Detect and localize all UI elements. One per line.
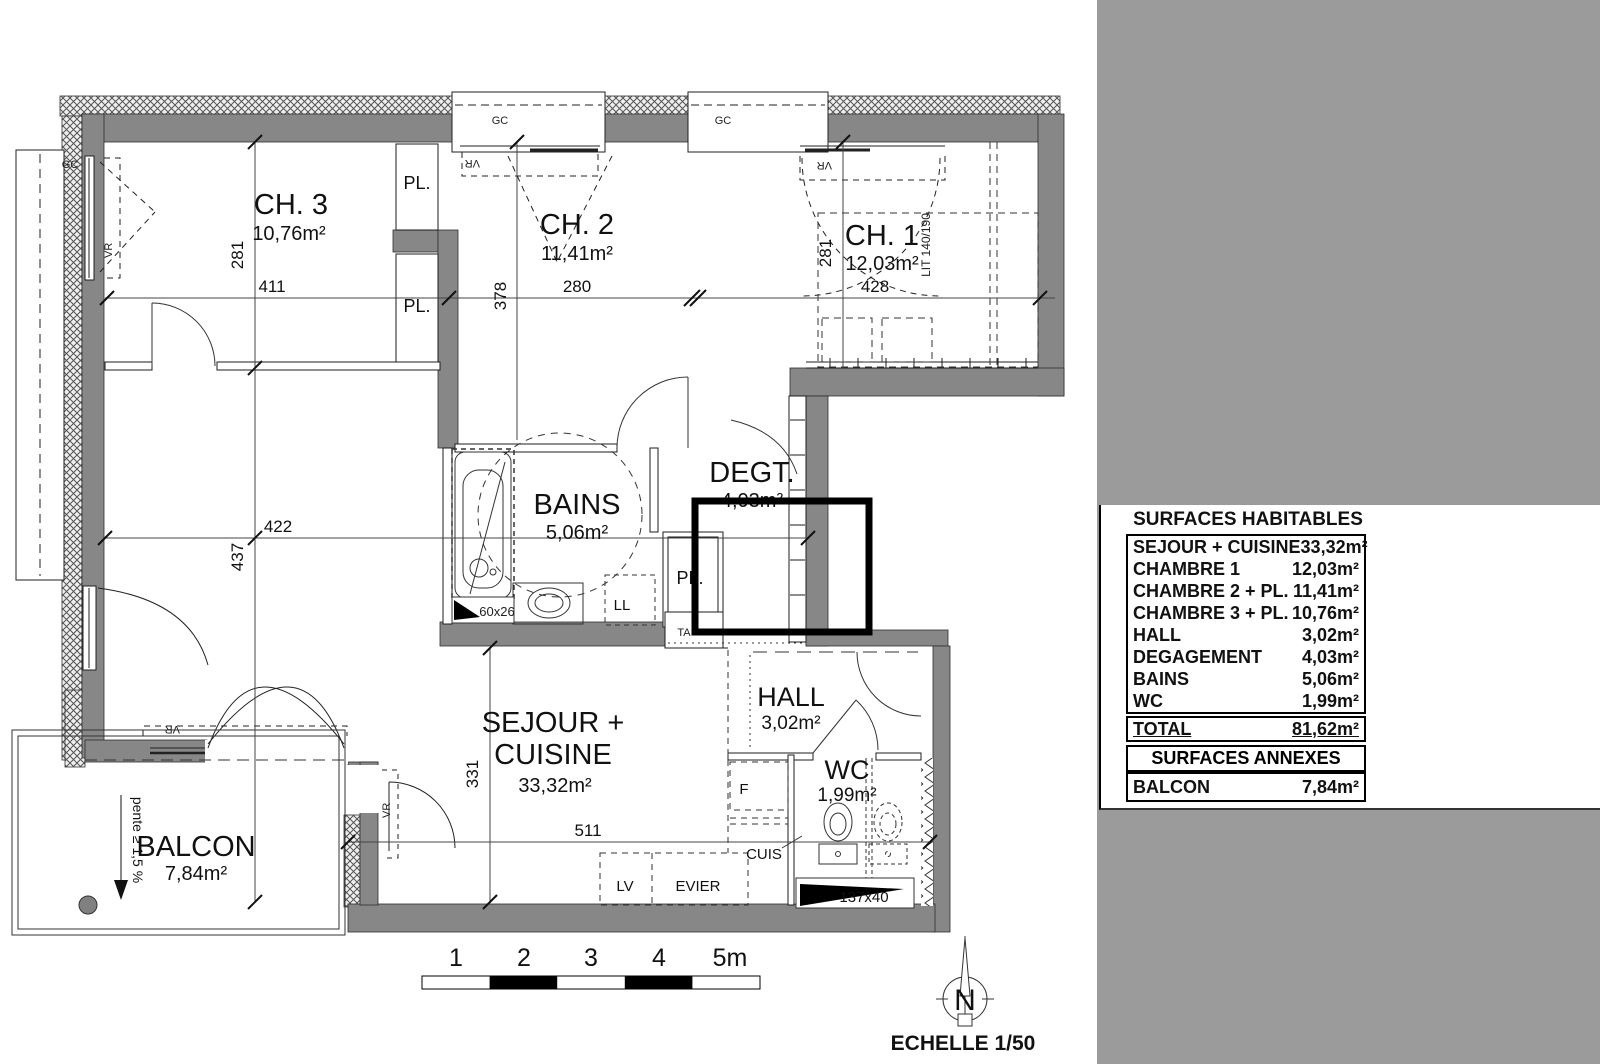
gc-label: GC — [492, 115, 509, 127]
room-hall-area: 3,02m² — [761, 713, 820, 734]
room-hall-name: HALL — [757, 682, 825, 712]
total-value: 81,62m² — [1292, 718, 1359, 740]
svg-text:422: 422 — [264, 517, 292, 536]
annex-table: BALCON7,84m² — [1126, 772, 1366, 802]
scale-tick: 5m — [713, 944, 748, 972]
north-arrow: N — [936, 936, 994, 1026]
row-label: BALCON — [1133, 774, 1210, 800]
row-value: 5,06m² — [1302, 668, 1359, 690]
table-row: SEJOUR + CUISINE33,32m² — [1128, 536, 1364, 558]
scale-text: ECHELLE 1/50 — [891, 1032, 1036, 1055]
f-label: F — [739, 781, 748, 798]
room-balcon-area: 7,84m² — [165, 863, 228, 885]
svg-text:437: 437 — [228, 543, 247, 571]
svg-text:VR: VR — [817, 159, 832, 171]
row-label: BAINS — [1133, 668, 1189, 690]
gc-label: GC — [62, 159, 79, 171]
table-row: CHAMBRE 2 + PL.11,41m² — [1128, 580, 1364, 602]
svg-text:VR: VR — [381, 803, 393, 818]
room-ch1-name: CH. 1 — [845, 220, 919, 252]
svg-text:331: 331 — [463, 760, 482, 788]
row-value: 33,32m² — [1301, 536, 1368, 558]
cuis-label: CUIS — [746, 846, 782, 863]
pl-label: PL. — [676, 568, 703, 588]
table-row: CHAMBRE 3 + PL.10,76m² — [1128, 602, 1364, 624]
scale-tick: 1 — [449, 944, 463, 972]
total-row: TOTAL81,62m² — [1128, 718, 1364, 740]
svg-text:378: 378 — [491, 282, 510, 310]
pl-label: PL. — [403, 296, 430, 316]
table-row: WC1,99m² — [1128, 690, 1364, 712]
scale-tick: 2 — [517, 944, 531, 972]
slope-label: pente ≥ 1,5 % — [130, 797, 146, 883]
svg-text:VR: VR — [165, 723, 180, 735]
total-label: TOTAL — [1133, 718, 1191, 740]
room-wc-name: WC — [825, 755, 870, 785]
duct-size-label: 137x40 — [839, 889, 888, 906]
table-row: HALL3,02m² — [1128, 624, 1364, 646]
row-value: 3,02m² — [1302, 624, 1359, 646]
pl-label: PL. — [403, 173, 430, 193]
room-ch3-name: CH. 3 — [254, 189, 328, 221]
row-label: CHAMBRE 1 — [1133, 558, 1240, 580]
row-label: CHAMBRE 2 + PL. — [1133, 580, 1289, 602]
bathtub — [452, 449, 514, 601]
annex-title: SURFACES ANNEXES — [1128, 747, 1364, 770]
row-value: 1,99m² — [1302, 690, 1359, 712]
surfaces-title: SURFACES HABITABLES — [1126, 509, 1370, 531]
scale-tick: 3 — [584, 944, 598, 972]
room-sejour-name1: SEJOUR + — [482, 707, 625, 739]
table-row: BALCON7,84m² — [1128, 774, 1364, 800]
bath-size-label: 60x26 — [479, 604, 514, 619]
bed-size-label: LIT 140/190 — [919, 213, 933, 277]
annex-title-box: SURFACES ANNEXES — [1126, 745, 1366, 772]
room-ch3-area: 10,76m² — [252, 223, 326, 245]
toilet-alt — [866, 758, 907, 880]
slope-arrow — [114, 795, 128, 900]
row-value: 11,41m² — [1293, 580, 1359, 602]
evier-label: EVIER — [675, 878, 720, 895]
table-row: CHAMBRE 112,03m² — [1128, 558, 1364, 580]
room-wc-area: 1,99m² — [817, 785, 876, 806]
scale-tick: 4 — [652, 944, 666, 972]
row-value: 10,76m² — [1292, 602, 1359, 624]
lv-label: LV — [616, 878, 633, 895]
table-row: DEGAGEMENT4,03m² — [1128, 646, 1364, 668]
toilet — [819, 803, 857, 864]
surfaces-table-card: SURFACES HABITABLES SEJOUR + CUISINE33,3… — [1099, 505, 1600, 810]
svg-text:VR: VR — [465, 157, 480, 169]
row-label: WC — [1133, 690, 1163, 712]
total-box: TOTAL81,62m² — [1126, 716, 1366, 742]
room-ch2-area: 11,41m² — [541, 243, 613, 265]
row-label: DEGAGEMENT — [1133, 646, 1262, 668]
north-label: N — [954, 984, 976, 1017]
row-label: SEJOUR + CUISINE — [1133, 536, 1301, 558]
gc-label: GC — [715, 115, 732, 127]
ta-label: TA — [677, 627, 691, 639]
svg-text:281: 281 — [228, 241, 247, 269]
room-balcon-name: BALCON — [136, 831, 255, 863]
room-degt-name: DEGT. — [709, 457, 794, 489]
room-ch2-name: CH. 2 — [540, 209, 614, 241]
room-bains-name: BAINS — [533, 489, 620, 521]
bath-sink — [513, 583, 583, 624]
svg-text:280: 280 — [563, 277, 591, 296]
row-value: 4,03m² — [1302, 646, 1359, 668]
scale-bar: 1 2 3 4 5m — [422, 944, 760, 989]
surfaces-table: SEJOUR + CUISINE33,32m² CHAMBRE 112,03m²… — [1126, 534, 1366, 714]
row-label: CHAMBRE 3 + PL. — [1133, 602, 1289, 624]
ll-label: LL — [614, 597, 631, 614]
room-sejour-name2: CUISINE — [494, 739, 612, 771]
floorplan-page: GC GC GC — [0, 0, 1600, 1064]
row-label: HALL — [1133, 624, 1181, 646]
floorplan-drawing: GC GC GC — [0, 0, 1097, 1064]
room-sejour-area: 33,32m² — [518, 775, 592, 797]
svg-text:428: 428 — [861, 277, 889, 296]
wc-insulation-zigzag — [921, 758, 933, 906]
room-bains-area: 5,06m² — [546, 522, 609, 544]
svg-text:411: 411 — [258, 277, 285, 296]
svg-text:VR: VR — [103, 243, 115, 258]
svg-text:281: 281 — [816, 239, 835, 267]
room-ch1-area: 12,03m² — [845, 253, 919, 275]
row-value: 12,03m² — [1292, 558, 1359, 580]
svg-text:511: 511 — [574, 821, 601, 840]
table-row: BAINS5,06m² — [1128, 668, 1364, 690]
row-value: 7,84m² — [1302, 774, 1359, 800]
